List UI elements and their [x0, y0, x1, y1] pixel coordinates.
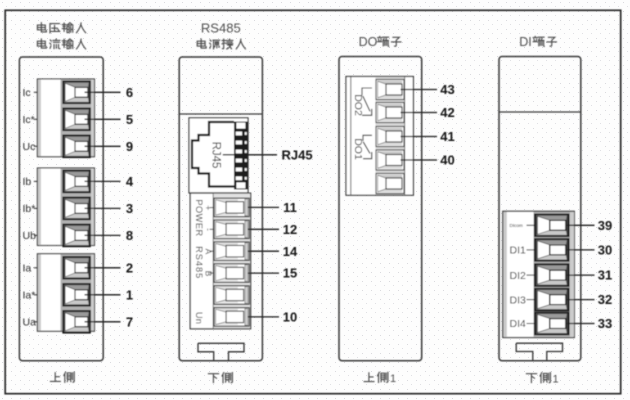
svg-text:14: 14 [283, 244, 298, 259]
svg-text:8: 8 [126, 228, 133, 243]
svg-text:RJ45: RJ45 [209, 142, 221, 169]
svg-text:7: 7 [126, 314, 133, 329]
svg-text:RS485: RS485 [194, 246, 204, 279]
svg-text:Ib: Ib [23, 176, 32, 188]
svg-text:43: 43 [440, 82, 454, 97]
svg-text:1: 1 [126, 287, 133, 302]
svg-text:B: B [204, 271, 214, 277]
svg-text:12: 12 [283, 222, 297, 237]
svg-text:2: 2 [126, 260, 133, 275]
svg-text:Ia: Ia [23, 262, 32, 274]
svg-text:39: 39 [598, 218, 612, 233]
svg-text:Ia*: Ia* [23, 289, 36, 301]
svg-text:DO2: DO2 [352, 94, 364, 116]
svg-text:Ic: Ic [23, 87, 31, 99]
svg-text:DIcom: DIcom [510, 223, 523, 228]
svg-text:1: 1 [390, 373, 396, 385]
svg-text:Ic*: Ic* [23, 114, 35, 126]
svg-text:DI4: DI4 [510, 318, 527, 330]
svg-text:32: 32 [598, 292, 612, 307]
svg-text:Uc: Uc [23, 141, 36, 153]
svg-text:3: 3 [126, 201, 133, 216]
svg-text:Ib*: Ib* [23, 203, 36, 215]
svg-text:41: 41 [440, 129, 454, 144]
svg-text:10: 10 [283, 310, 297, 325]
svg-text:33: 33 [598, 316, 612, 331]
svg-text:5: 5 [126, 112, 133, 127]
svg-text:1: 1 [553, 374, 559, 386]
svg-text:6: 6 [126, 85, 133, 100]
svg-text:9: 9 [126, 139, 133, 154]
svg-text:42: 42 [440, 105, 454, 120]
svg-text:POWER: POWER [194, 199, 204, 236]
svg-text:11: 11 [283, 200, 297, 215]
svg-text:DI2: DI2 [510, 270, 527, 282]
svg-text:4: 4 [126, 174, 134, 189]
svg-text:DI3: DI3 [510, 294, 527, 306]
svg-text:RJ45: RJ45 [282, 147, 313, 162]
svg-text:Ua: Ua [23, 316, 37, 328]
svg-text:A: A [204, 249, 214, 255]
svg-text:15: 15 [283, 266, 297, 281]
svg-text:RS485: RS485 [201, 21, 241, 36]
svg-text:DI: DI [519, 35, 532, 49]
svg-text:DO1: DO1 [352, 138, 364, 160]
svg-text:30: 30 [598, 243, 612, 258]
svg-text:DO: DO [359, 35, 378, 49]
svg-text:40: 40 [440, 153, 454, 168]
svg-text:31: 31 [598, 268, 612, 283]
svg-text:Ub: Ub [23, 230, 37, 242]
svg-text:DI1: DI1 [510, 245, 527, 257]
svg-text:Un: Un [194, 312, 204, 324]
